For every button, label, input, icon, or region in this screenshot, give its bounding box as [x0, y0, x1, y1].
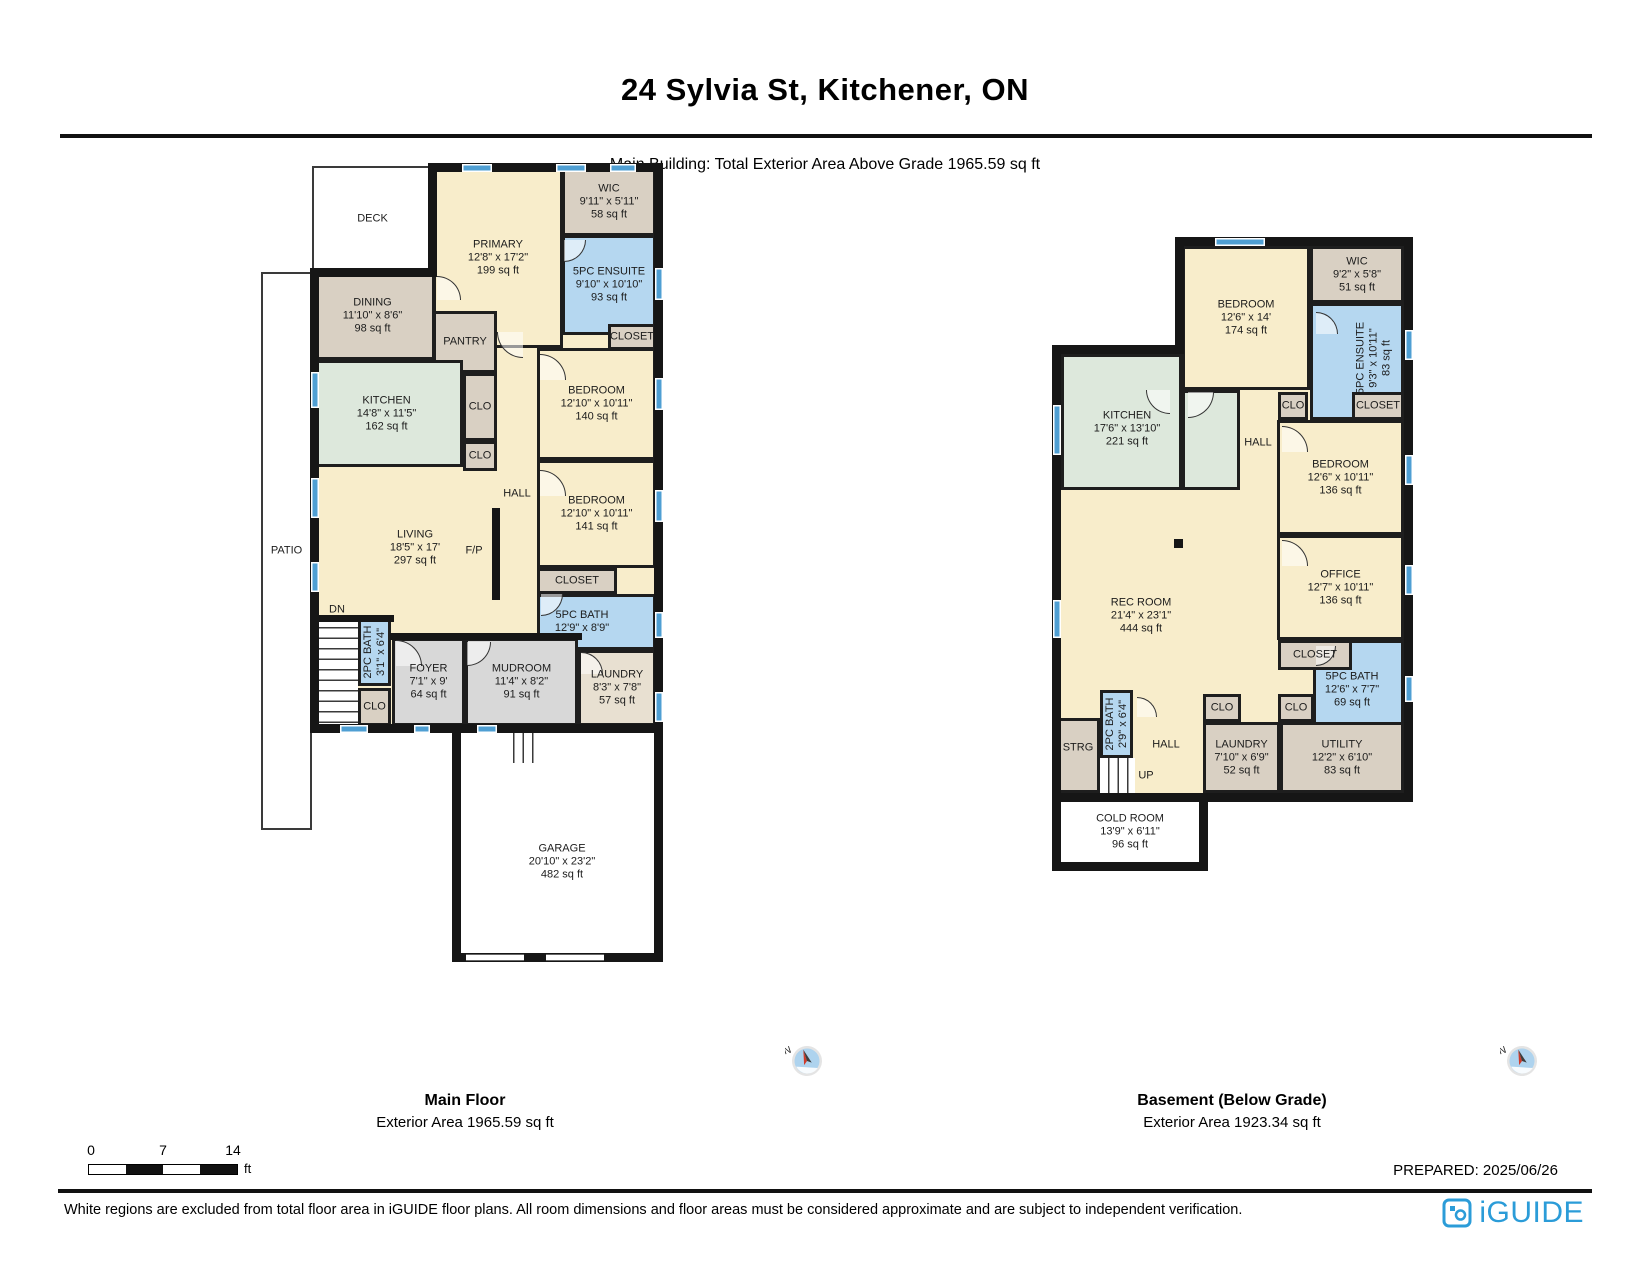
scale-tick: 0	[87, 1142, 95, 1158]
room-hall-basement-upper-label: HALL	[1244, 437, 1272, 450]
room-kitchen-label: KITCHEN14'8" x 11'5"162 sq ft	[357, 394, 417, 433]
basement-window	[1053, 600, 1061, 638]
room-primary-bedroom-label: PRIMARY12'8" x 17'2"199 sq ft	[468, 239, 528, 278]
compass-icon: N	[785, 1037, 827, 1079]
basement-wall	[1052, 862, 1208, 871]
room-laundry-label: LAUNDRY8'3" x 7'8"57 sq ft	[591, 669, 643, 708]
room-wic-basement-label: WIC9'2" x 5'8"51 sq ft	[1333, 255, 1381, 294]
main-floor-area: Exterior Area 1965.59 sq ft	[265, 1114, 665, 1131]
basement-wall	[1052, 802, 1061, 871]
room-bath-5pc-basement-label: 5PC BATH12'6" x 7'7"69 sq ft	[1325, 671, 1379, 710]
compass-icon: N	[1500, 1037, 1542, 1079]
room-storage-label: STRG	[1063, 742, 1094, 755]
room-closet-hall-b-label: CLO	[469, 450, 492, 463]
room-deck-label: DECK	[357, 212, 388, 225]
room-kitchen-basement-label: KITCHEN17'6" x 13'10"221 sq ft	[1094, 410, 1160, 449]
scale-bar-ticks: 0 7 14	[88, 1142, 288, 1159]
basement-wall	[1199, 802, 1208, 871]
room-bedroom-2-label: BEDROOM12'10" x 10'11"141 sq ft	[561, 495, 633, 534]
basement-wall	[1175, 237, 1184, 354]
basement-wall	[1052, 345, 1183, 354]
room-ensuite-basement-label: 5PC ENSUITE9'3" x 10'11"83 sq ft	[1355, 322, 1394, 394]
room-mudroom-label: MUDROOM11'4" x 8'2"91 sq ft	[492, 663, 551, 702]
scale-bar-segments	[88, 1164, 238, 1175]
basement-window	[1405, 455, 1413, 485]
room-closet-upper-basement-label: CLOSET	[1356, 400, 1400, 413]
basement-wall	[1174, 539, 1183, 548]
basement-wall	[1404, 237, 1413, 802]
room-bath-2pc-label: 2PC BATH3'1" x 6'4"	[362, 626, 388, 679]
room-hall-label: HALL	[503, 488, 531, 501]
basement-wall	[1175, 237, 1413, 246]
room-hall-basement-lower-label: HALL	[1152, 739, 1180, 752]
room-bedroom-1-label: BEDROOM12'10" x 10'11"140 sq ft	[561, 385, 633, 424]
basement-window	[1215, 238, 1265, 246]
room-fireplace-label-label: F/P	[465, 545, 482, 558]
iguide-logo-text: iGUIDE	[1479, 1196, 1584, 1230]
room-closet-ensuite-label: CLOSET	[610, 331, 654, 344]
basement-floor-plan: BEDROOM12'6" x 14'174 sq ftWIC9'2" x 5'8…	[0, 0, 1650, 1275]
iguide-logo: iGUIDE	[1442, 1196, 1584, 1230]
basement-window	[1053, 405, 1061, 455]
room-stairs-up	[1100, 758, 1135, 793]
room-patio-label: PATIO	[271, 545, 302, 558]
basement-area: Exterior Area 1923.34 sq ft	[1032, 1114, 1432, 1131]
footer-divider	[58, 1189, 1592, 1193]
room-closet-rec-1-label: CLO	[1211, 702, 1234, 715]
scale-tick: 7	[159, 1142, 167, 1158]
room-office-label: OFFICE12'7" x 10'11"136 sq ft	[1308, 568, 1374, 607]
room-closet-bedroom2-label: CLOSET	[555, 575, 599, 588]
room-foyer-label: FOYER7'1" x 9'64 sq ft	[409, 663, 447, 702]
basement-window	[1405, 676, 1413, 702]
room-laundry-basement-label: LAUNDRY7'10" x 6'9"52 sq ft	[1214, 738, 1268, 777]
room-closet-foyer-label: CLO	[363, 701, 386, 714]
main-floor-caption: Main Floor Exterior Area 1965.59 sq ft	[265, 1092, 665, 1131]
room-closet-office-label: CLOSET	[1293, 649, 1337, 662]
basement-window	[1405, 565, 1413, 595]
basement-name: Basement (Below Grade)	[1032, 1092, 1432, 1110]
room-garage-label: GARAGE20'10" x 23'2"482 sq ft	[529, 843, 595, 882]
disclaimer-text: White regions are excluded from total fl…	[64, 1202, 1344, 1218]
room-closet-hall-basement-label: CLO	[1282, 400, 1305, 413]
prepared-date: PREPARED: 2025/06/26	[1393, 1162, 1558, 1179]
floorplan-page: 24 Sylvia St, Kitchener, ON Main Buildin…	[0, 0, 1650, 1275]
compass-n-label: N	[1500, 1045, 1508, 1058]
room-rec-room-label: REC ROOM21'4" x 23'1"444 sq ft	[1111, 597, 1172, 636]
room-bedroom-basement-1-label: BEDROOM12'6" x 14'174 sq ft	[1218, 299, 1275, 338]
compass-n-label: N	[785, 1045, 793, 1058]
room-bedroom-basement-2-label: BEDROOM12'6" x 10'11"136 sq ft	[1308, 458, 1374, 497]
room-utility-label: UTILITY12'2" x 6'10"83 sq ft	[1312, 738, 1372, 777]
room-closet-hall-a-label: CLO	[469, 401, 492, 414]
scale-bar: 0 7 14 ft	[88, 1142, 288, 1159]
basement-wall	[1052, 793, 1413, 802]
room-storage	[1056, 718, 1100, 793]
iguide-logo-icon	[1442, 1198, 1472, 1228]
room-wic-label: WIC9'11" x 5'11"58 sq ft	[580, 183, 639, 222]
basement-caption: Basement (Below Grade) Exterior Area 192…	[1032, 1092, 1432, 1131]
room-ensuite-5pc-label: 5PC ENSUITE9'10" x 10'10"93 sq ft	[573, 266, 645, 305]
main-floor-name: Main Floor	[265, 1092, 665, 1110]
room-living-label: LIVING18'5" x 17'297 sq ft	[390, 529, 440, 568]
room-pantry-label: PANTRY	[443, 336, 487, 349]
scale-tick: 14	[225, 1142, 241, 1158]
room-cold-room-label: COLD ROOM13'9" x 6'11"96 sq ft	[1096, 813, 1164, 852]
room-bath-5pc-label: 5PC BATH12'9" x 8'9"	[555, 609, 609, 635]
room-dining-label: DINING11'10" x 8'6"98 sq ft	[343, 296, 403, 335]
basement-window	[1405, 330, 1413, 360]
room-bath-2pc-basement-label: 2PC BATH2'9" x 6'4"	[1104, 698, 1130, 751]
room-closet-rec-2-label: CLO	[1285, 702, 1308, 715]
room-dn-label-label: DN	[329, 604, 345, 617]
scale-unit: ft	[244, 1161, 251, 1176]
room-up-label-label: UP	[1138, 770, 1153, 783]
